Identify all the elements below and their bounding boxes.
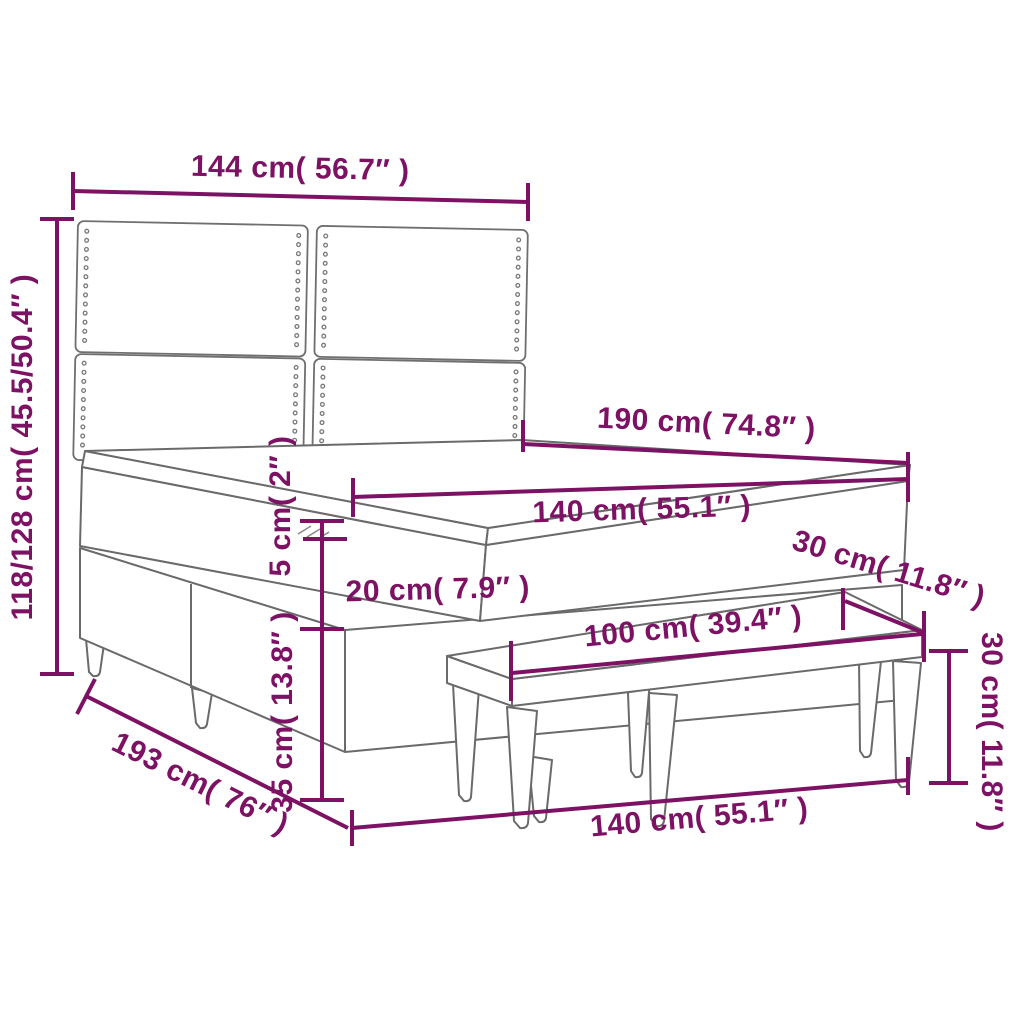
dim-label-bench-height: 30 cm( 11.8″ ) xyxy=(975,632,1008,832)
dim-label-bed-length: 190 cm( 74.8″ ) xyxy=(596,402,816,446)
dim-label-headboard-width: 144 cm( 56.7″ ) xyxy=(191,150,410,188)
dim-label-mattress-height: 20 cm( 7.9″ ) xyxy=(345,571,530,609)
dim-label-base-height: 35 cm( 13.8″ ) xyxy=(266,611,299,812)
dimension-diagram: 144 cm( 56.7″ ) 118/128 cm( 45.5/50.4″ )… xyxy=(0,0,1024,1024)
headboard xyxy=(73,221,528,469)
dim-headboard-width: 144 cm( 56.7″ ) xyxy=(73,150,528,221)
headboard-panel-top-right xyxy=(314,226,528,361)
dim-total-height: 118/128 cm( 45.5/50.4″ ) xyxy=(6,219,74,674)
bench-leg-back-right xyxy=(859,659,881,757)
dim-label-mattress-width: 140 cm( 55.1″ ) xyxy=(532,490,752,530)
diagram-svg: 144 cm( 56.7″ ) 118/128 cm( 45.5/50.4″ )… xyxy=(0,0,1024,1024)
dim-bench-height: 30 cm( 11.8″ ) xyxy=(929,632,1008,832)
dim-label-topper-height: 5 cm( 2″ ) xyxy=(264,435,297,576)
headboard-panel-top-left xyxy=(75,221,308,357)
bench-leg-back-left xyxy=(453,684,479,801)
dim-label-total-height: 118/128 cm( 45.5/50.4″ ) xyxy=(6,274,39,621)
